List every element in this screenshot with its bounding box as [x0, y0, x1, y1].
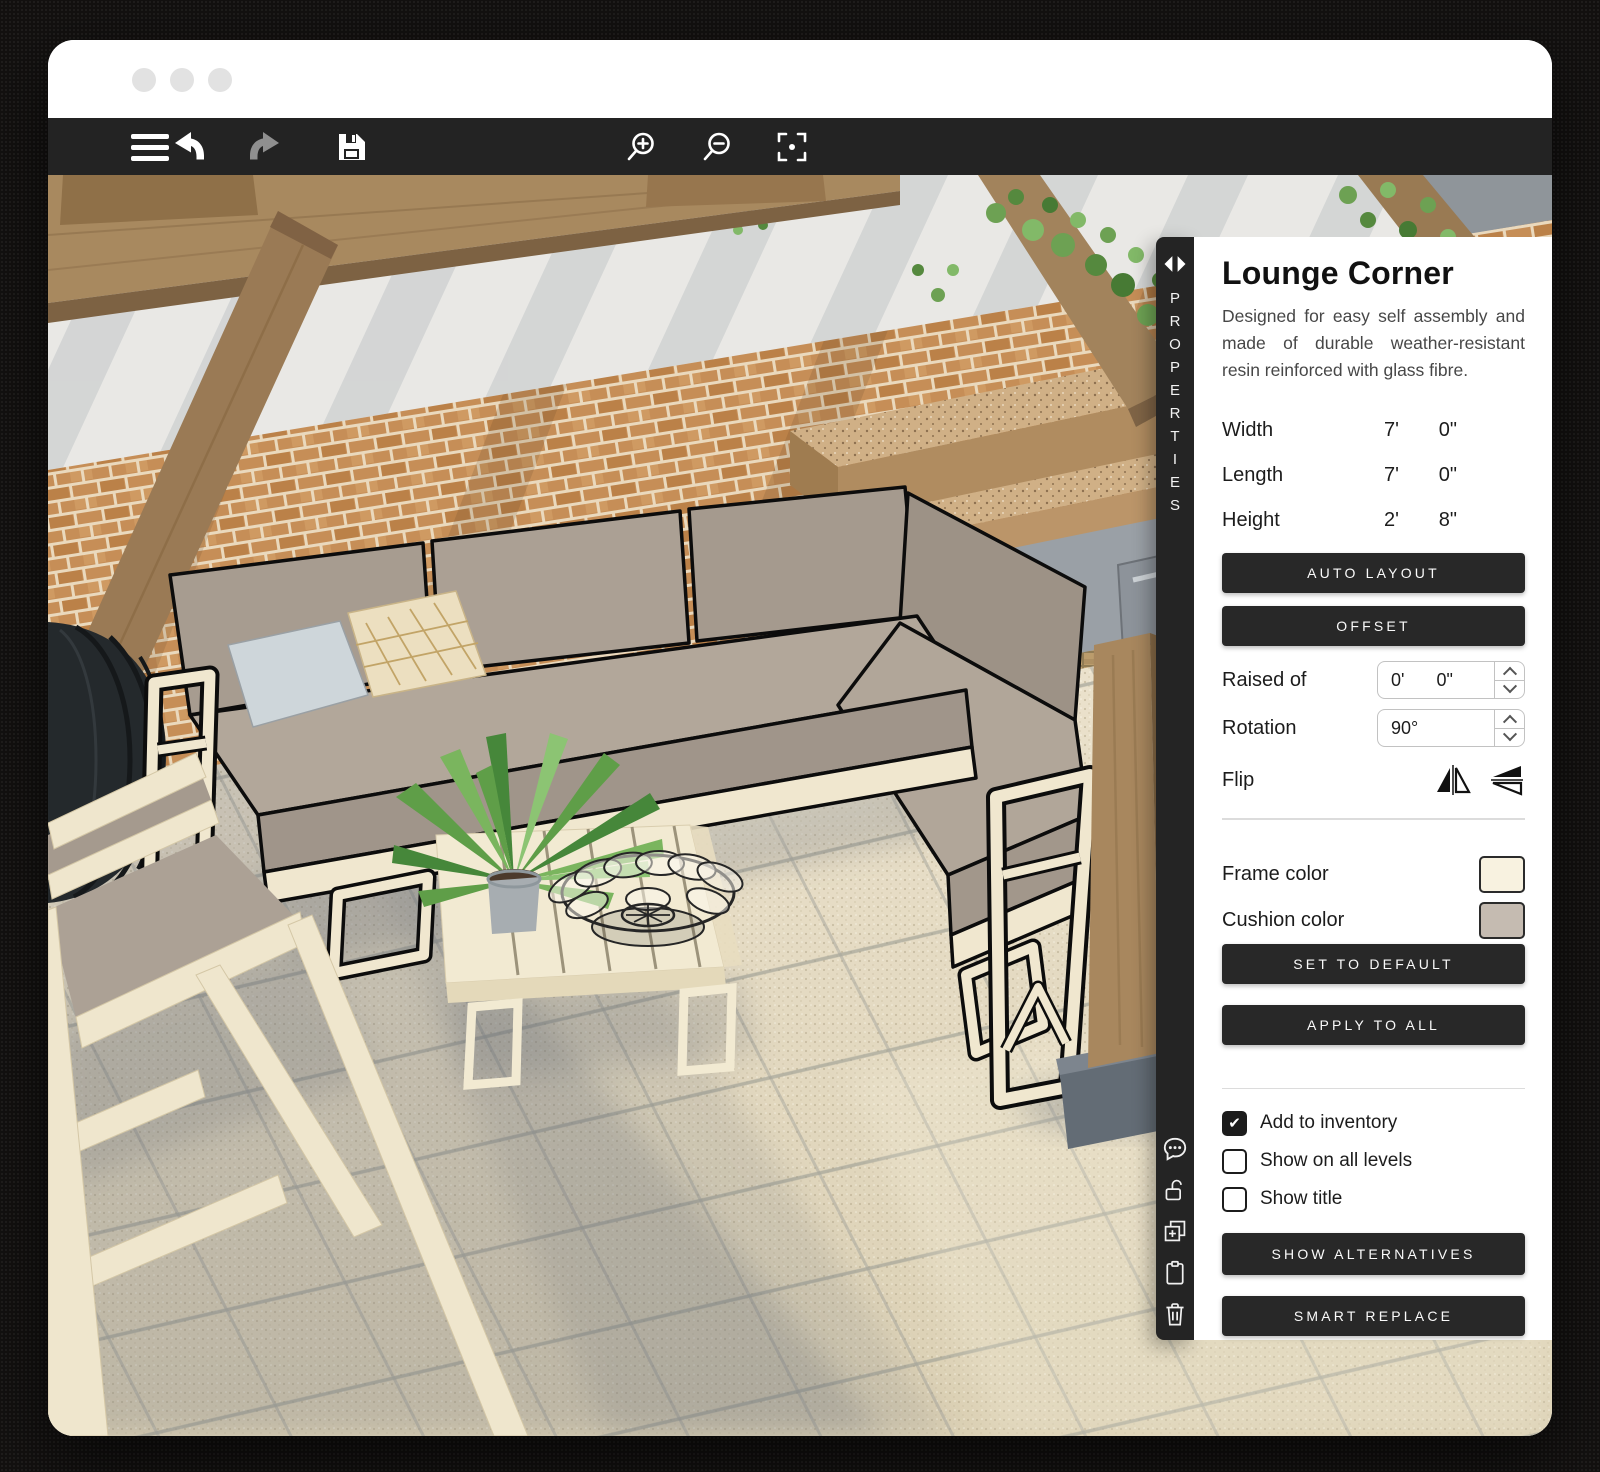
show-alternatives-button[interactable]: SHOW ALTERNATIVES [1222, 1233, 1525, 1275]
checkbox[interactable] [1222, 1149, 1247, 1174]
redo-icon[interactable] [242, 118, 286, 175]
zoom-out-icon[interactable] [696, 118, 740, 175]
item-description: Designed for easy self assembly and made… [1222, 303, 1525, 384]
rotation-label: Rotation [1222, 717, 1377, 740]
dim-inches: 0" [1399, 419, 1457, 442]
clipboard-icon[interactable] [1161, 1258, 1189, 1286]
rotation-value: 90° [1391, 718, 1418, 739]
trash-icon[interactable] [1161, 1299, 1189, 1327]
raised-of-input[interactable]: 0' 0" [1377, 661, 1525, 699]
checkbox-label: Add to inventory [1260, 1112, 1397, 1134]
dim-inches: 0" [1399, 464, 1457, 487]
properties-tab-label[interactable]: PROPERTIES [1167, 290, 1184, 520]
flip-horizontal-icon[interactable] [1435, 764, 1471, 796]
smart-replace-button[interactable]: SMART REPLACE [1222, 1296, 1525, 1336]
offset-button[interactable]: OFFSET [1222, 606, 1525, 646]
center-view-icon[interactable] [770, 118, 814, 175]
dim-feet: 2' [1327, 509, 1399, 532]
menu-icon[interactable] [126, 118, 174, 175]
checkbox-label: Show title [1260, 1188, 1342, 1210]
raised-of-stepper [1494, 662, 1524, 698]
frame-color-swatch[interactable] [1479, 856, 1525, 893]
raised-of-row: Raised of 0' 0" [1222, 660, 1525, 700]
dim-inches: 8" [1399, 509, 1457, 532]
window-control-dot[interactable] [170, 68, 194, 92]
rotation-row: Rotation 90° [1222, 708, 1525, 748]
dimension-row-length: Length 7' 0" [1222, 453, 1525, 498]
dim-label: Length [1222, 464, 1327, 487]
rotation-input[interactable]: 90° [1377, 709, 1525, 747]
undo-icon[interactable] [168, 118, 212, 175]
design-canvas[interactable]: PROPERTIES Lounge Corner Designed for ea… [48, 175, 1552, 1436]
properties-panel: Lounge Corner Designed for easy self ass… [1194, 237, 1552, 1340]
main-toolbar [48, 118, 1552, 175]
stepper-down-button[interactable] [1495, 680, 1524, 699]
app-window: PROPERTIES Lounge Corner Designed for ea… [48, 40, 1552, 1436]
frame-color-label: Frame color [1222, 863, 1479, 886]
cushion-color-swatch[interactable] [1479, 902, 1525, 939]
dim-label: Height [1222, 509, 1327, 532]
dim-label: Width [1222, 419, 1327, 442]
flip-row: Flip [1222, 760, 1525, 800]
frame-color-row: Frame color [1222, 856, 1525, 894]
flip-label: Flip [1222, 769, 1417, 792]
divider [1222, 1088, 1525, 1090]
zoom-in-icon[interactable] [620, 118, 664, 175]
properties-tab-strip[interactable]: PROPERTIES [1156, 237, 1194, 1340]
comments-icon[interactable] [1161, 1135, 1189, 1163]
checkbox[interactable] [1222, 1187, 1247, 1212]
window-titlebar [48, 40, 1552, 118]
stepper-up-button[interactable] [1495, 662, 1524, 680]
dimensions: Width 7' 0" Length 7' 0" Height 2' 8" [1222, 408, 1525, 543]
stepper-up-button[interactable] [1495, 710, 1524, 728]
set-to-default-button[interactable]: SET TO DEFAULT [1222, 944, 1525, 984]
raised-of-feet: 0' [1391, 670, 1404, 691]
apply-to-all-button[interactable]: APPLY TO ALL [1222, 1005, 1525, 1045]
rotation-stepper [1494, 710, 1524, 746]
save-icon[interactable] [330, 118, 374, 175]
panel-collapse-arrows-icon[interactable] [1161, 250, 1189, 278]
checkbox[interactable] [1222, 1111, 1247, 1136]
dim-feet: 7' [1327, 464, 1399, 487]
cushion-color-row: Cushion color [1222, 902, 1525, 940]
dim-feet: 7' [1327, 419, 1399, 442]
flip-vertical-icon[interactable] [1489, 764, 1525, 796]
add-to-group-icon[interactable] [1161, 1217, 1189, 1245]
cushion-color-label: Cushion color [1222, 909, 1479, 932]
stepper-down-button[interactable] [1495, 728, 1524, 747]
panel-title: Lounge Corner [1222, 253, 1525, 293]
window-control-dot[interactable] [132, 68, 156, 92]
show-title-checkbox-row[interactable]: Show title [1222, 1185, 1525, 1213]
auto-layout-button[interactable]: AUTO LAYOUT [1222, 553, 1525, 593]
raised-of-label: Raised of [1222, 669, 1377, 692]
add-to-inventory-checkbox-row[interactable]: Add to inventory [1222, 1109, 1525, 1137]
raised-of-inches: 0" [1436, 670, 1452, 691]
window-control-dot[interactable] [208, 68, 232, 92]
dimension-row-width: Width 7' 0" [1222, 408, 1525, 453]
lock-open-icon[interactable] [1161, 1176, 1189, 1204]
checkbox-label: Show on all levels [1260, 1150, 1412, 1172]
dimension-row-height: Height 2' 8" [1222, 498, 1525, 543]
divider [1222, 818, 1525, 820]
show-on-all-levels-checkbox-row[interactable]: Show on all levels [1222, 1147, 1525, 1175]
